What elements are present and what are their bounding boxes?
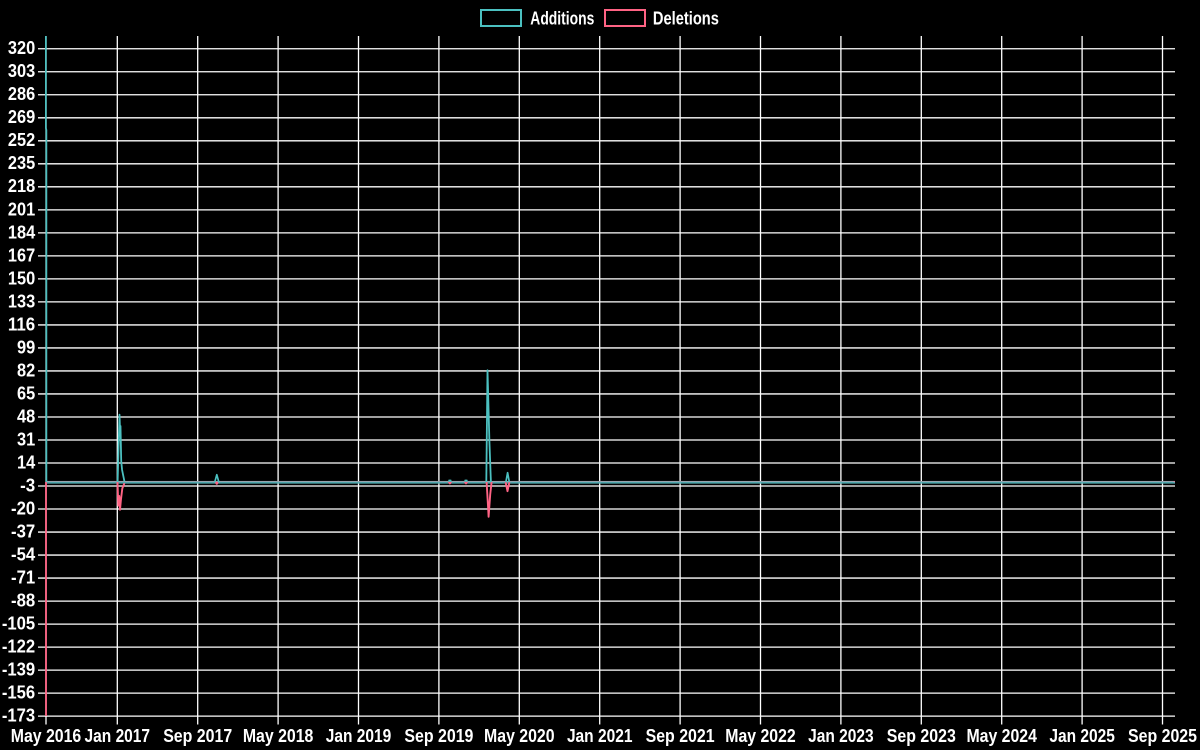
- svg-text:May 2022: May 2022: [725, 726, 796, 746]
- svg-text:218: 218: [8, 176, 35, 196]
- svg-text:-122: -122: [2, 637, 35, 657]
- svg-text:May 2016: May 2016: [11, 726, 82, 746]
- svg-text:65: 65: [17, 383, 35, 403]
- svg-text:184: 184: [8, 222, 35, 242]
- svg-text:Sep 2017: Sep 2017: [163, 726, 232, 746]
- svg-text:Sep 2025: Sep 2025: [1128, 726, 1197, 746]
- svg-text:286: 286: [8, 84, 35, 104]
- svg-text:320: 320: [8, 38, 35, 58]
- svg-text:-139: -139: [2, 660, 35, 680]
- svg-text:-37: -37: [11, 521, 35, 541]
- svg-text:Jan 2025: Jan 2025: [1049, 726, 1115, 746]
- svg-text:May 2020: May 2020: [484, 726, 555, 746]
- svg-text:167: 167: [8, 245, 35, 265]
- svg-text:-54: -54: [11, 544, 35, 564]
- svg-text:Sep 2023: Sep 2023: [887, 726, 956, 746]
- svg-text:-105: -105: [2, 614, 35, 634]
- svg-text:82: 82: [17, 360, 35, 380]
- svg-text:Jan 2021: Jan 2021: [567, 726, 633, 746]
- svg-text:May 2018: May 2018: [243, 726, 314, 746]
- svg-text:201: 201: [8, 199, 35, 219]
- svg-text:-156: -156: [2, 683, 35, 703]
- svg-text:303: 303: [8, 61, 35, 81]
- svg-text:-88: -88: [11, 590, 35, 610]
- svg-text:-3: -3: [20, 475, 35, 495]
- svg-text:Jan 2019: Jan 2019: [326, 726, 392, 746]
- svg-text:116: 116: [8, 314, 35, 334]
- svg-text:Sep 2021: Sep 2021: [646, 726, 715, 746]
- svg-text:-173: -173: [2, 706, 35, 726]
- svg-text:31: 31: [17, 429, 35, 449]
- svg-text:269: 269: [8, 107, 35, 127]
- svg-text:Jan 2017: Jan 2017: [85, 726, 151, 746]
- svg-text:Deletions: Deletions: [653, 9, 719, 29]
- svg-text:Jan 2023: Jan 2023: [808, 726, 874, 746]
- svg-text:133: 133: [8, 291, 35, 311]
- svg-text:252: 252: [8, 130, 35, 150]
- svg-text:99: 99: [17, 337, 35, 357]
- svg-text:-71: -71: [11, 567, 35, 587]
- svg-text:May 2024: May 2024: [966, 726, 1036, 746]
- svg-text:Additions: Additions: [530, 9, 594, 29]
- svg-text:14: 14: [17, 452, 35, 472]
- svg-text:48: 48: [17, 406, 35, 426]
- svg-text:150: 150: [8, 268, 35, 288]
- svg-text:-20: -20: [11, 498, 35, 518]
- svg-text:Sep 2019: Sep 2019: [404, 726, 473, 746]
- svg-text:235: 235: [8, 153, 35, 173]
